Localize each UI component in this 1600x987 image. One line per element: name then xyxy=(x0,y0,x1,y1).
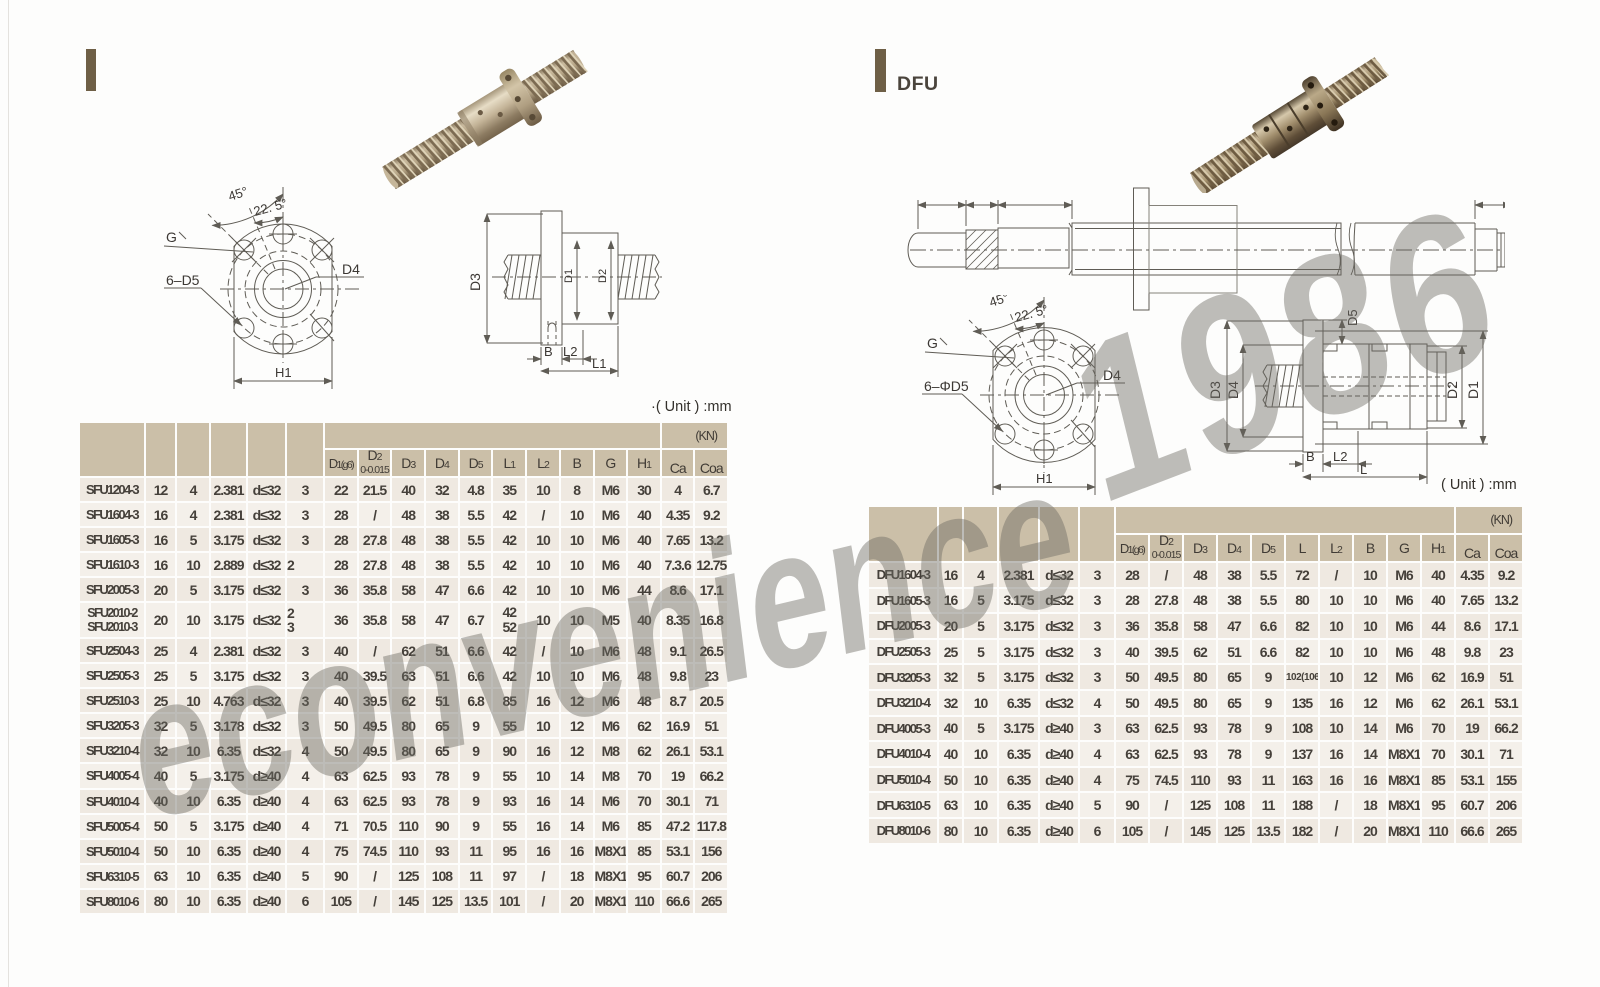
svg-text:6–ΦD5: 6–ΦD5 xyxy=(924,378,969,394)
svg-text:B: B xyxy=(544,344,553,359)
svg-text:L2: L2 xyxy=(563,344,577,359)
svg-text:G: G xyxy=(927,335,938,351)
svg-text:D1: D1 xyxy=(563,269,575,283)
svg-text:22. 5°: 22. 5° xyxy=(1013,302,1050,325)
svg-text:D2: D2 xyxy=(597,269,609,283)
svg-text:D4: D4 xyxy=(342,261,360,277)
svg-text:G: G xyxy=(166,229,177,245)
svg-text:6–D5: 6–D5 xyxy=(166,272,200,288)
svg-text:45°: 45° xyxy=(987,295,1010,310)
svg-text:D3: D3 xyxy=(467,273,483,291)
svg-text:H1: H1 xyxy=(275,365,292,380)
svg-text:45°: 45° xyxy=(226,185,249,204)
svg-text:L: L xyxy=(1360,462,1367,477)
svg-text:L1: L1 xyxy=(592,356,606,371)
